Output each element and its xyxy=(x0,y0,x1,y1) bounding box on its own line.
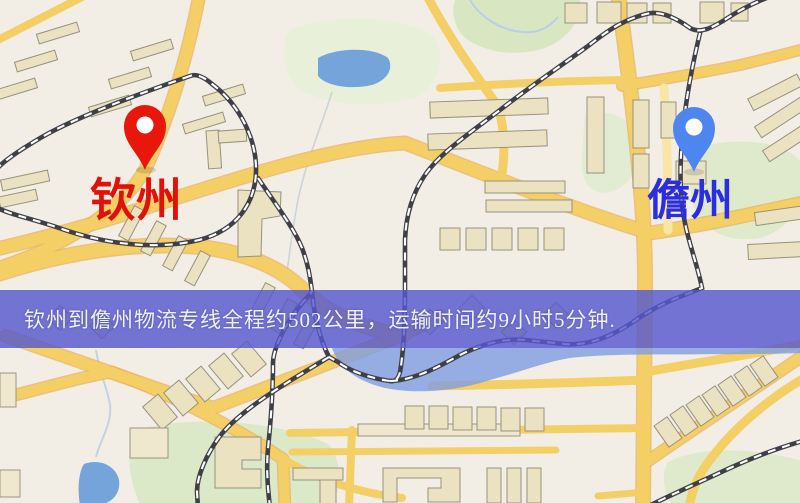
lake-top xyxy=(318,50,390,87)
map-canvas: 钦州 儋州 xyxy=(0,0,800,503)
origin-label: 钦州 xyxy=(90,175,182,226)
destination-label: 儋州 xyxy=(647,177,733,225)
banner-text: 钦州到儋州物流专线全程约502公里，运输时间约9小时5分钟. xyxy=(0,304,616,334)
info-banner: 钦州到儋州物流专线全程约502公里，运输时间约9小时5分钟. xyxy=(0,290,800,348)
map-image: 钦州 儋州 钦州到儋州物流专线全程约502公里，运输时间约9小时5分钟. xyxy=(0,0,800,503)
